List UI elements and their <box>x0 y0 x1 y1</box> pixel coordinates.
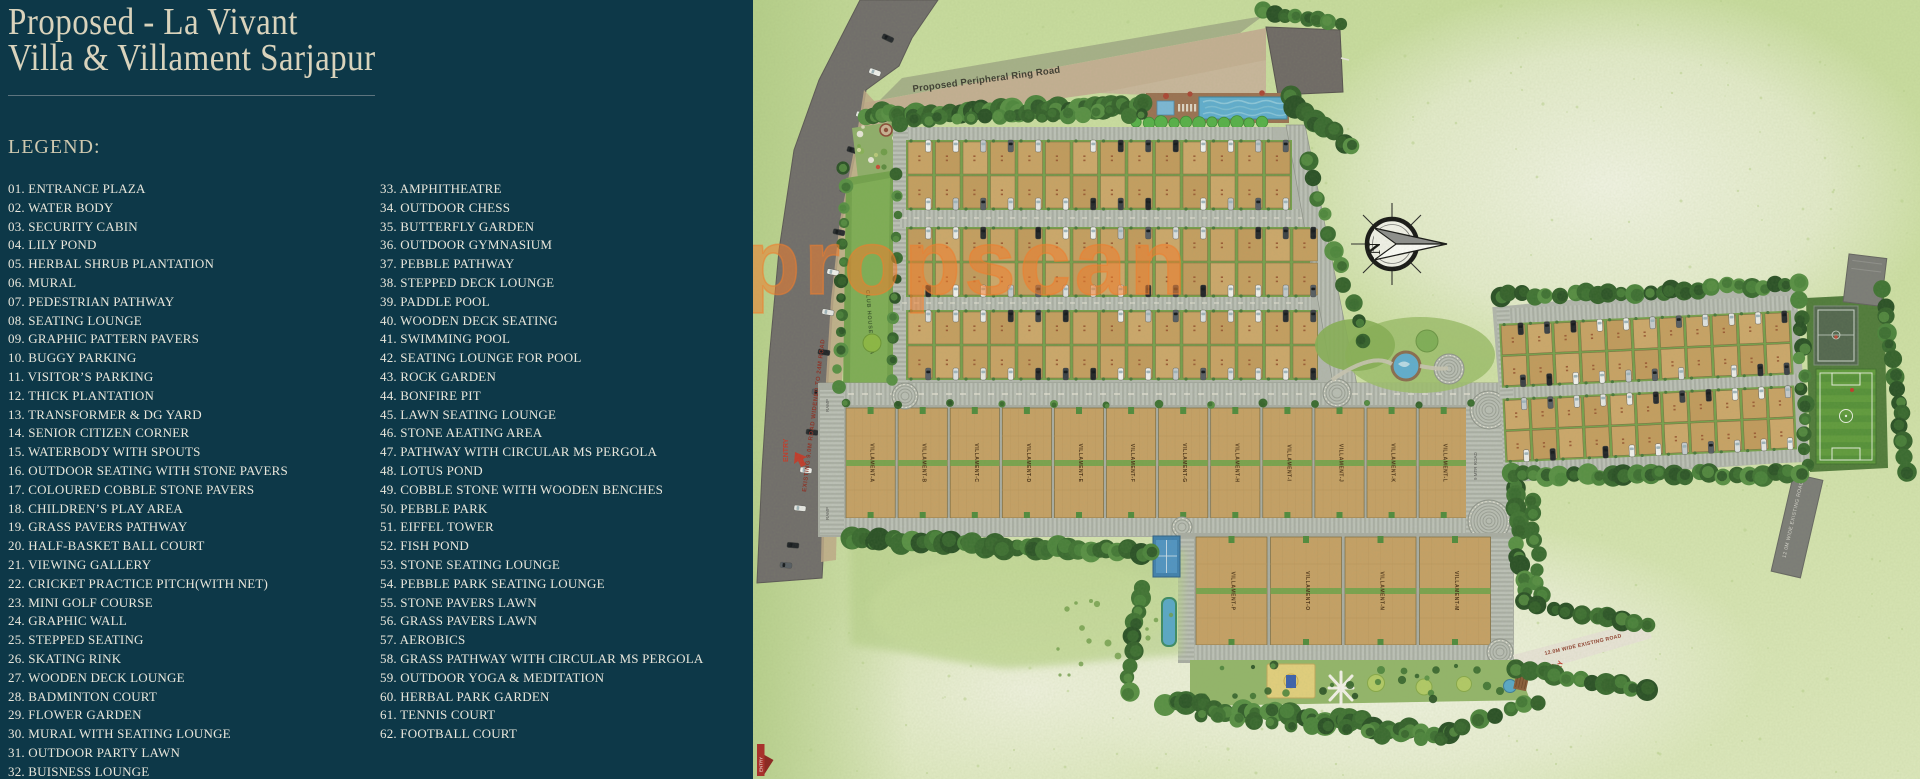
svg-text:propscan: propscan <box>744 212 1190 314</box>
svg-text:ENTRY: ENTRY <box>759 757 764 772</box>
